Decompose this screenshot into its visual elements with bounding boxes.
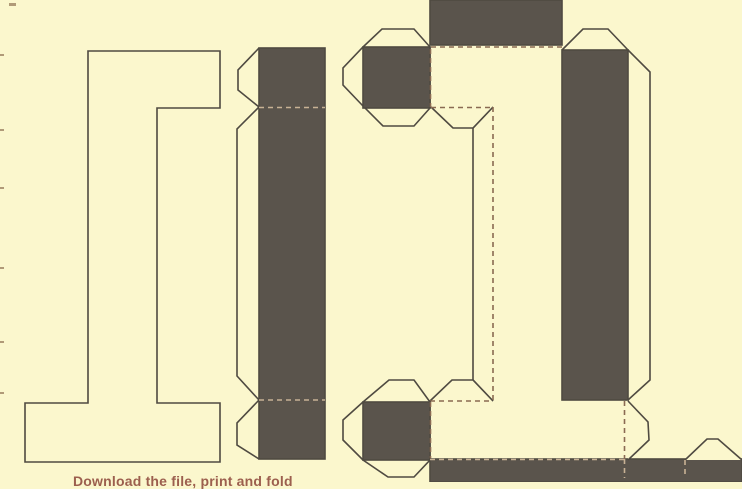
back-top-face [430,0,562,45]
top-serif-face [363,47,430,108]
papercraft-net-diagram [0,0,742,482]
edge-mark [0,187,4,189]
edge-mark [9,3,16,6]
right-strip-side-face [562,50,628,400]
edge-mark [0,392,4,394]
mid-strip-side-face [259,48,325,459]
bottom-band-face [430,459,742,482]
right-strip-flap [628,50,650,400]
edge-mark [0,267,4,269]
bottom-serif-face [363,402,430,460]
stem-flap-long [473,107,493,401]
edge-mark [0,341,4,343]
mid-strip-flap-left [237,107,259,400]
edge-mark [0,54,4,56]
bottom-caption: Download the file, print and fold [73,473,293,489]
edge-mark [0,129,4,131]
